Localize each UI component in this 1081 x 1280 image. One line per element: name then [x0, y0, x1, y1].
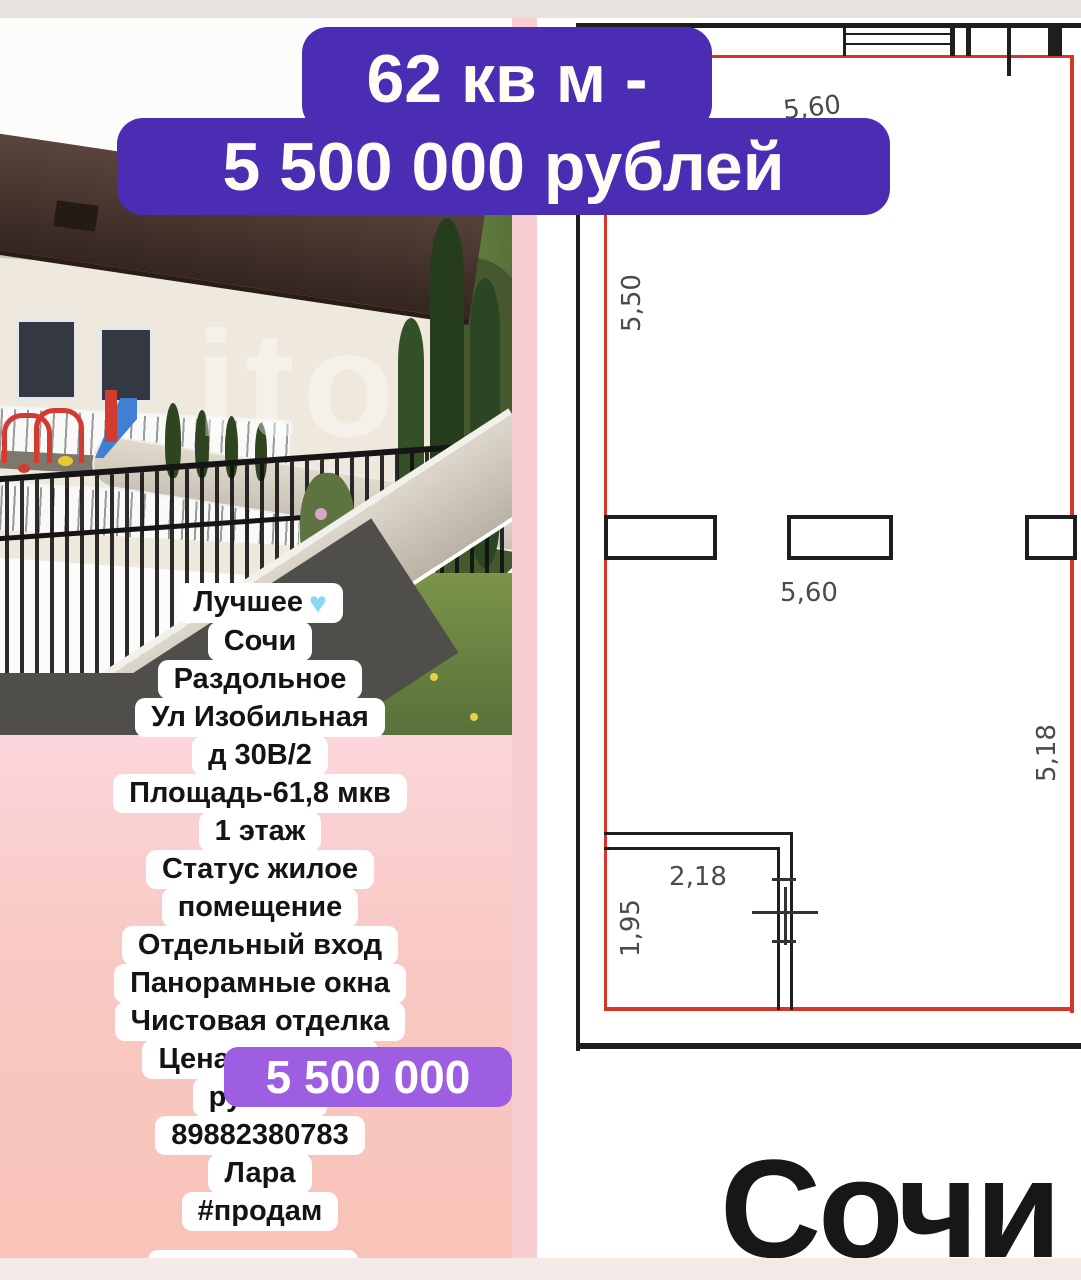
wall-pier: [950, 24, 955, 56]
dim-label-right: 5,18: [1032, 713, 1060, 793]
ad-page: ito 5,60 5,50 5,60 5,18 2,18 1,95 Лучшее…: [0, 0, 1081, 1280]
top-edge-strip: [0, 0, 1081, 18]
window-end: [843, 24, 846, 56]
window-line: [845, 43, 951, 45]
dim-label-middle: 5,60: [769, 578, 849, 606]
partition-pier: [604, 515, 717, 560]
caption-line: Статус жилое: [146, 850, 374, 889]
door-cross-v: [784, 887, 787, 945]
playground-arch: [34, 408, 84, 463]
wall-pier: [966, 24, 971, 56]
caption-line: Ул Изобильная: [135, 698, 385, 737]
room-wall-outer: [790, 832, 793, 1010]
blossom: [315, 508, 327, 520]
caption-line-name: Лара: [208, 1154, 311, 1193]
price-sticker: 5 500 000: [224, 1047, 512, 1107]
listing-captions: Лучшее♥ Сочи Раздольное Ул Изобильная д …: [58, 583, 462, 1230]
wall-pier: [1048, 24, 1062, 56]
room-wall-inner: [604, 847, 780, 850]
partition-pier: [787, 515, 893, 560]
dim-label-left: 5,50: [617, 263, 645, 343]
room-wall-inner: [777, 847, 780, 1010]
watermark: ito: [195, 298, 402, 471]
caption-line-hashtag: #продам: [182, 1192, 339, 1231]
plan-wall-bottom: [576, 1043, 1081, 1049]
area-banner: 62 кв м -: [302, 27, 712, 131]
room-wall-outer: [604, 832, 793, 835]
dim-label-room-width: 2,18: [658, 862, 738, 890]
flower: [470, 713, 478, 721]
house-window: [15, 318, 78, 401]
caption-line: Чистовая отделка: [115, 1002, 406, 1041]
caption-line: помещение: [162, 888, 359, 927]
playground-tower: [105, 390, 117, 442]
price-banner: 5 500 000 рублей: [117, 118, 890, 215]
wall-tick: [1007, 24, 1011, 76]
caption-line: д 30В/2: [192, 736, 328, 775]
caption-text: Лучшее: [193, 586, 303, 618]
caption-line: Сочи: [208, 622, 313, 661]
blue-heart-icon: ♥: [303, 587, 327, 620]
window-line: [845, 33, 951, 35]
caption-line: Лучшее♥: [177, 583, 343, 623]
caption-line: Раздольное: [158, 660, 363, 699]
dim-label-room-height: 1,95: [616, 888, 644, 968]
caption-line: Площадь-61,8 мкв: [113, 774, 407, 813]
playground-toy: [58, 456, 73, 466]
plan-red-bottom: [604, 1007, 1074, 1011]
playground-toy: [18, 464, 30, 473]
bottom-edge-strip: [0, 1258, 1081, 1280]
caption-line-phone: 89882380783: [155, 1116, 364, 1155]
caption-line: Панорамные окна: [114, 964, 406, 1003]
caption-line: Отдельный вход: [122, 926, 398, 965]
door-tick: [772, 878, 796, 881]
caption-line: 1 этаж: [199, 812, 322, 851]
partition-pier: [1025, 515, 1077, 560]
